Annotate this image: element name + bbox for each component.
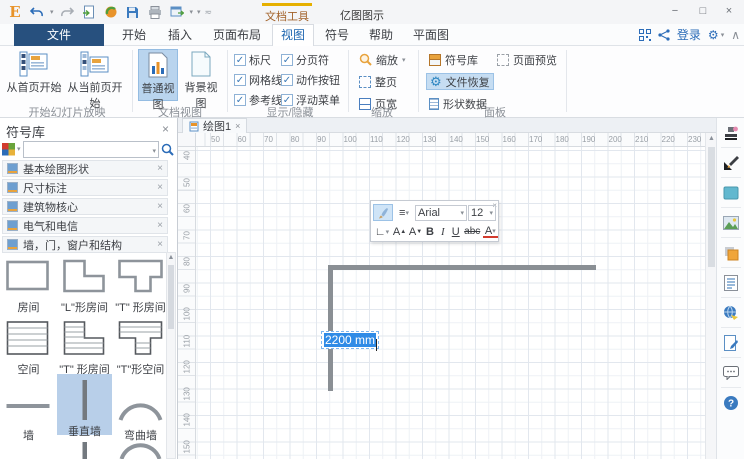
settings-dropdown[interactable]: ▾ — [721, 31, 725, 39]
v-ruler-tick: 80 — [183, 256, 192, 268]
h-ruler-tick: 80 — [291, 135, 300, 144]
v-ruler-tick: 140 — [183, 415, 192, 427]
category-close-icon[interactable]: × — [157, 201, 163, 212]
print-button[interactable] — [146, 3, 164, 21]
picture-icon[interactable] — [720, 212, 742, 234]
library-icon — [7, 239, 18, 250]
menu-bar: 文件 开始 插入 页面布局 视图 符号 帮助 平面图 登录 ⚙▾ ∧ — [0, 24, 744, 46]
library-icon — [7, 201, 18, 212]
panel-title: 符号库 — [6, 122, 45, 141]
h-ruler-tick: 180 — [556, 135, 569, 144]
canvas-scrollbar-thumb[interactable] — [708, 147, 715, 267]
start-from-current-page-button[interactable]: 从当前页开始 — [64, 49, 126, 101]
v-ruler-tick: 130 — [183, 388, 192, 400]
shape-wall[interactable]: 墙 — [1, 378, 56, 443]
library-picker-icon[interactable] — [2, 143, 15, 156]
wall-horizontal[interactable] — [328, 265, 596, 270]
shape-gallery: 房间 "L"形房间 "T" 形房间 空间 "T" 形房间 "T"形空间 墙 — [0, 250, 166, 459]
quick-access-toolbar: E ▾ ▾ ▾ ≂ — [6, 2, 212, 22]
font-color-button[interactable]: A▾ — [483, 225, 498, 238]
underline-button[interactable]: U — [450, 223, 462, 240]
h-ruler-tick: 120 — [397, 135, 410, 144]
library-picker-dropdown[interactable]: ▾ — [17, 145, 21, 153]
zoom-button[interactable]: 缩放▾ — [356, 51, 409, 68]
checkbox-gridlines[interactable]: ✓网格线 — [234, 73, 282, 87]
contextual-tab-label[interactable]: 文档工具 — [258, 8, 316, 24]
v-ruler-tick: 110 — [183, 335, 192, 347]
symbol-library-panel: 符号库 × ▾ ▾ 基本绘图形状× 尺寸标注× 建筑物核心× 电气和电信× 墙，… — [0, 118, 178, 459]
category-close-icon[interactable]: × — [157, 220, 163, 231]
document-tab-strip: 绘图1 × — [178, 118, 716, 133]
tab-page-layout[interactable]: 页面布局 — [204, 24, 270, 46]
category-basic-shapes[interactable]: 基本绘图形状× — [2, 160, 168, 177]
contextual-tab-accent — [262, 3, 312, 6]
qr-code-icon[interactable] — [639, 29, 651, 41]
v-ruler-tick: 40 — [183, 150, 192, 162]
shape-l-space[interactable]: "T" 形房间 — [57, 316, 112, 377]
export-window-button[interactable] — [168, 3, 186, 21]
background-view-button[interactable]: 背景视图 — [181, 49, 221, 101]
font-name-combo[interactable]: Arial▾ — [415, 205, 467, 221]
page-preview-button[interactable]: 页面预览 — [494, 51, 560, 68]
h-ruler-tick: 70 — [264, 135, 273, 144]
wall-vertical[interactable] — [328, 265, 333, 391]
v-ruler-tick: 50 — [183, 176, 192, 188]
h-ruler-tick: 110 — [370, 135, 383, 144]
maximize-button[interactable]: □ — [690, 2, 716, 20]
library-icon — [7, 220, 18, 231]
shape-row4-arc[interactable] — [113, 440, 168, 459]
shape-space[interactable]: 空间 — [1, 316, 56, 377]
category-electrical-telecom[interactable]: 电气和电信× — [2, 217, 168, 234]
text-cursor — [376, 339, 377, 351]
document-tab-close-icon[interactable]: × — [235, 121, 240, 131]
shape-row4-vertical[interactable] — [57, 440, 112, 459]
login-link[interactable]: 登录 — [677, 26, 701, 44]
h-ruler-tick: 60 — [238, 135, 247, 144]
tab-view[interactable]: 视图 — [272, 24, 314, 46]
document-tab-icon — [189, 121, 199, 132]
notes-list-icon[interactable] — [720, 272, 742, 294]
h-ruler-tick: 220 — [662, 135, 675, 144]
fill-color-icon[interactable] — [720, 182, 742, 204]
v-ruler-tick: 100 — [183, 309, 192, 321]
floating-format-toolbar: × ≡▾ Arial▾ 12▾ ∟▾ A▲ A▼ B I U abc A▾ — [370, 200, 499, 242]
scroll-up-icon[interactable]: ▲ — [167, 254, 175, 261]
tab-help[interactable]: 帮助 — [360, 24, 402, 46]
shape-t-room[interactable]: "T" 形房间 — [113, 254, 168, 315]
undo-dropdown[interactable]: ▾ — [50, 8, 54, 16]
qat-more-icon[interactable]: ≂ — [205, 7, 213, 18]
right-tool-rail: ? — [716, 118, 744, 459]
category-building-core[interactable]: 建筑物核心× — [2, 198, 168, 215]
library-icon — [7, 163, 18, 174]
layers-icon[interactable] — [720, 242, 742, 264]
theme-stamp-icon[interactable] — [720, 122, 742, 144]
v-ruler-tick: 120 — [183, 362, 192, 374]
shape-room[interactable]: 房间 — [1, 254, 56, 315]
customize-qat-button[interactable]: ▾ — [197, 8, 201, 16]
horizontal-ruler: 5060708090100110120130140150160170180190… — [196, 133, 705, 147]
library-icon — [7, 182, 18, 193]
file-recovery-button[interactable]: ⚙ 文件恢复 — [426, 73, 494, 90]
tab-home[interactable]: 开始 — [112, 24, 156, 46]
symbol-library-icon — [429, 54, 441, 66]
svg-text:?: ? — [728, 399, 734, 410]
shape-vertical-wall[interactable]: 垂直墙 — [57, 374, 112, 435]
comment-bubble-icon[interactable] — [720, 362, 742, 384]
collapse-ribbon-icon[interactable]: ∧ — [731, 26, 740, 44]
drawing-grid[interactable]: 2200 mm × ≡▾ Arial▾ 12▾ ∟▾ A▲ A▼ B I U a… — [196, 147, 705, 459]
symbol-search-input[interactable]: ▾ — [23, 141, 159, 158]
dimension-text-box[interactable]: 2200 mm — [321, 331, 379, 349]
document-tab[interactable]: 绘图1 × — [182, 118, 247, 133]
save-button[interactable] — [124, 3, 142, 21]
h-ruler-tick: 210 — [635, 135, 648, 144]
h-ruler-tick: 50 — [211, 135, 220, 144]
close-button[interactable]: × — [716, 2, 742, 20]
bold-button[interactable]: B — [424, 223, 436, 240]
help-icon[interactable]: ? — [720, 392, 742, 414]
h-ruler-tick: 90 — [317, 135, 326, 144]
v-ruler-tick: 90 — [183, 282, 192, 294]
minimize-button[interactable]: − — [662, 2, 688, 20]
shape-curved-wall[interactable]: 弯曲墙 — [113, 378, 168, 443]
checkbox-ruler[interactable]: ✓标尺 — [234, 53, 271, 67]
tab-file[interactable]: 文件 — [14, 24, 104, 46]
tab-floorplan[interactable]: 平面图 — [404, 24, 458, 46]
grow-font-button[interactable]: A▲ — [392, 223, 407, 240]
h-ruler-tick: 140 — [450, 135, 463, 144]
checkbox-action-buttons[interactable]: ✓动作按钮 — [281, 73, 340, 87]
shrink-font-button[interactable]: A▼ — [408, 223, 423, 240]
canvas-vertical-scrollbar[interactable]: ▲ — [705, 133, 716, 459]
hyperlink-globe-icon[interactable] — [720, 302, 742, 324]
shape-l-room[interactable]: "L"形房间 — [57, 254, 112, 315]
new-file-button[interactable] — [80, 3, 98, 21]
dimension-style-icon[interactable]: ∟▾ — [373, 223, 391, 240]
italic-button[interactable]: I — [437, 223, 449, 240]
category-close-icon[interactable]: × — [157, 163, 163, 174]
brush-icon[interactable] — [373, 204, 393, 221]
fit-page-icon — [359, 76, 371, 88]
page-preview-icon — [497, 54, 509, 66]
h-ruler-tick: 170 — [529, 135, 542, 144]
h-ruler-tick: 130 — [423, 135, 436, 144]
h-ruler-tick: 200 — [609, 135, 622, 144]
tab-symbols[interactable]: 符号 — [316, 24, 358, 46]
ruler-corner — [178, 133, 196, 147]
h-ruler-tick: 150 — [476, 135, 489, 144]
canvas-area: 绘图1 × 5060708090100110120130140150160170… — [178, 118, 716, 459]
edit-document-icon[interactable] — [720, 332, 742, 354]
line-spacing-icon[interactable]: ≡▾ — [394, 204, 414, 221]
pencil-style-icon[interactable] — [720, 152, 742, 174]
panel-scrollbar[interactable]: ▲ — [166, 252, 176, 459]
share-icon[interactable] — [658, 29, 670, 41]
strikethrough-button[interactable]: abc — [463, 223, 482, 240]
symbol-library-button[interactable]: 符号库 — [426, 51, 481, 68]
h-ruler-tick: 100 — [344, 135, 357, 144]
shape-t-space[interactable]: "T"形空间 — [113, 316, 168, 377]
vertical-ruler: 405060708090100110120130140150 — [178, 147, 196, 459]
open-button[interactable] — [102, 3, 120, 21]
category-close-icon[interactable]: × — [157, 239, 163, 250]
ribbon: 从首页开始 从当前页开始 开始幻灯片放映 普通视图 背景视图 文档视图 ✓标尺 … — [0, 46, 744, 118]
settings-gear-icon[interactable]: ⚙ — [708, 26, 719, 44]
normal-view-button[interactable]: 普通视图 — [138, 49, 178, 101]
checkbox-page-break[interactable]: ✓分页符 — [281, 53, 329, 67]
v-ruler-tick: 60 — [183, 203, 192, 215]
redo-button[interactable] — [58, 3, 76, 21]
h-ruler-tick: 230 — [688, 135, 701, 144]
category-close-icon[interactable]: × — [157, 182, 163, 193]
edraw-logo-icon: E — [6, 3, 24, 21]
v-ruler-tick: 150 — [183, 441, 192, 453]
export-dropdown[interactable]: ▾ — [190, 8, 194, 16]
fit-page-button[interactable]: 整页 — [356, 73, 400, 90]
panel-close-icon[interactable]: × — [162, 122, 169, 136]
search-icon[interactable] — [161, 143, 174, 156]
tab-insert[interactable]: 插入 — [158, 24, 202, 46]
category-dimensioning[interactable]: 尺寸标注× — [2, 179, 168, 196]
title-bar: E ▾ ▾ ▾ ≂ 文档工具 亿图图示 − □ × — [0, 0, 744, 24]
h-ruler-tick: 160 — [503, 135, 516, 144]
start-from-first-page-button[interactable]: 从首页开始 — [6, 49, 62, 101]
dimension-selected-text[interactable]: 2200 mm — [324, 333, 376, 347]
h-ruler-tick: 190 — [582, 135, 595, 144]
panel-scrollbar-thumb[interactable] — [168, 265, 174, 329]
undo-button[interactable] — [28, 3, 46, 21]
search-history-dropdown[interactable]: ▾ — [152, 147, 156, 155]
app-title: 亿图图示 — [340, 7, 384, 23]
v-ruler-tick: 70 — [183, 229, 192, 241]
contextual-tab-group[interactable]: 文档工具 — [258, 0, 316, 24]
file-recovery-icon: ⚙ — [430, 74, 442, 90]
font-size-combo[interactable]: 12▾ — [468, 205, 496, 221]
